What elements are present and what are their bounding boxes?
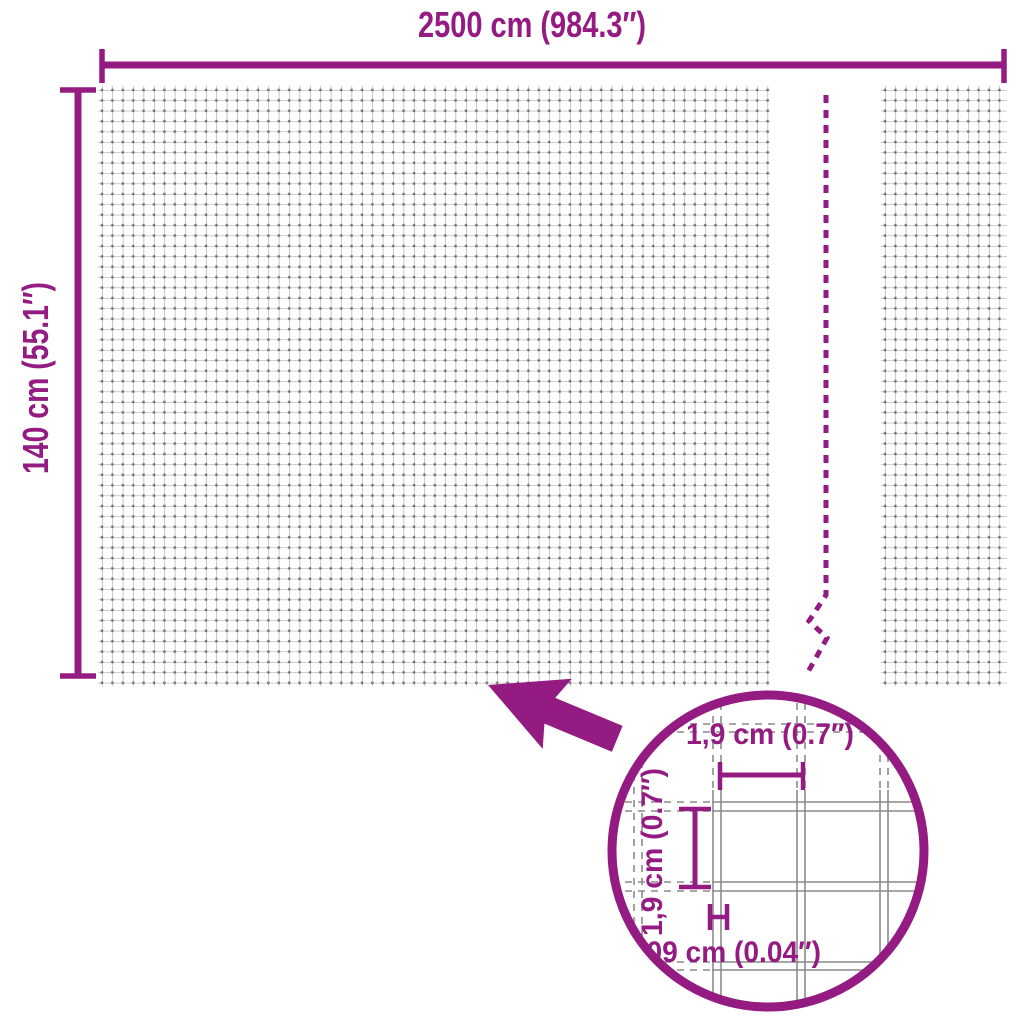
mesh-width-label: 1,9 cm (0.7″)	[686, 718, 854, 751]
product-dimension-diagram: 2500 cm (984.3″) 140 cm (55.1″)	[0, 0, 1024, 1024]
height-dimension: 140 cm (55.1″)	[15, 90, 96, 676]
height-dimension-label: 140 cm (55.1″)	[15, 282, 56, 474]
mesh-panel-right	[881, 86, 1007, 686]
break-line	[808, 95, 827, 672]
detail-lens: 1,9 cm (0.7″) 1,9 cm (0.7″) 0,09 cm (0.0…	[612, 690, 924, 1007]
width-dimension: 2500 cm (984.3″)	[102, 4, 1004, 83]
mesh-panel-left	[98, 86, 770, 686]
mesh-height-label: 1,9 cm (0.7″)	[636, 768, 669, 936]
lens-solid-wires	[712, 790, 924, 1006]
dimension-diagram-canvas: 2500 cm (984.3″) 140 cm (55.1″)	[0, 0, 1024, 1024]
width-dimension-label: 2500 cm (984.3″)	[418, 4, 646, 45]
mesh-height-marker	[679, 809, 711, 887]
mesh-width-marker	[720, 762, 803, 790]
